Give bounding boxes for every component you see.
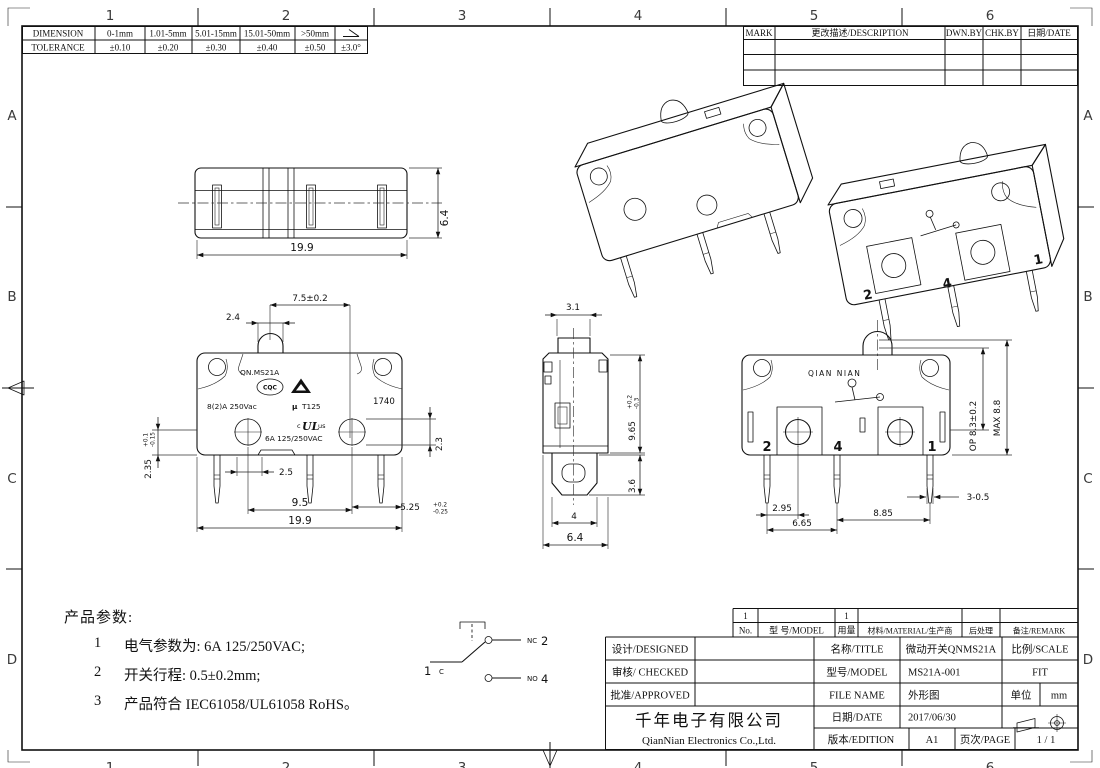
- circuit-com-label: C: [439, 668, 444, 676]
- tolerance-range: 15.01-50mm: [244, 29, 290, 39]
- front-view-pins: [214, 455, 384, 503]
- dim-back-a: 2.95: [772, 504, 792, 514]
- unit-label: 单位: [1011, 689, 1033, 702]
- cqc-logo-icon: CQC: [257, 379, 283, 395]
- dim-side-terminal: 3.6: [628, 479, 638, 493]
- zone-col-label: 2: [282, 760, 291, 768]
- revision-header-chk: CHK.BY: [985, 28, 1019, 38]
- zone-col-label: 3: [458, 760, 467, 768]
- tolerance-table-row1-label: DIMENSION: [33, 29, 84, 39]
- file-name-label: FILE NAME: [829, 691, 885, 702]
- date-label: 日期/DATE: [832, 712, 883, 724]
- note-text: 电气参数为: 6A 125/250VAC;: [124, 635, 424, 656]
- unit-value: mm: [1051, 691, 1067, 702]
- svg-text:5.25: 5.25: [400, 503, 420, 513]
- revision-header-description: 更改描述/DESCRIPTION: [811, 27, 909, 38]
- svg-text:+0.2: +0.2: [628, 395, 634, 409]
- circuit-nc-label: NC: [527, 637, 537, 645]
- circuit-com-terminal: 1: [424, 664, 431, 678]
- revision-header-dwn: DWN.BY: [946, 28, 983, 38]
- tolerance-table: DIMENSION 0-1mm 1.01-5mm 5.01-15mm 15.01…: [22, 26, 368, 54]
- circuit-no-label: NO: [527, 675, 538, 683]
- dim-pin-count: 3-0.5: [967, 493, 990, 503]
- marking-rating-lo: 6A 125/250VAC: [265, 434, 322, 443]
- checked-label: 审核/ CHECKED: [612, 666, 689, 679]
- angle-symbol-icon: [343, 30, 359, 37]
- svg-text:-0.3: -0.3: [635, 397, 641, 409]
- title-label: 名称/TITLE: [830, 643, 883, 656]
- tolerance-value: ±0.40: [257, 43, 278, 53]
- ul-logo-icon: c UL us: [297, 420, 326, 433]
- note-number: 1: [64, 635, 124, 656]
- tolerance-value: ±0.50: [305, 43, 326, 53]
- isometric-view-front: [545, 95, 795, 300]
- front-view-body: [197, 334, 402, 504]
- scale-value: FIT: [1032, 668, 1048, 679]
- svg-text:-0.25: -0.25: [433, 510, 448, 516]
- zone-col-label: 5: [810, 8, 819, 24]
- terminal-4-label: 4: [833, 440, 842, 455]
- top-view-body: [178, 168, 442, 238]
- edition-value: A1: [926, 735, 939, 746]
- title-block: 1 1 No. 型 号/MODEL 用量 材料/MATERIAL/生产商 后处理…: [605, 608, 1080, 751]
- parts-qty-value: 1: [844, 611, 849, 621]
- zone-col-label: 1: [106, 760, 115, 768]
- marking-rating-hi: 8(2)A 250Vac: [207, 402, 257, 411]
- side-view-body: [543, 328, 608, 505]
- dim-edge: 5.25 +0.2 -0.25: [400, 503, 448, 516]
- marking-brand: QIAN NIAN: [808, 369, 861, 378]
- parts-header-model: 型 号/MODEL: [769, 626, 824, 636]
- dim-top-depth: 6.4: [439, 209, 451, 226]
- tolerance-table-row2-label: TOLERANCE: [31, 43, 85, 53]
- svg-text:UL: UL: [302, 420, 320, 433]
- parts-header-no: No.: [739, 626, 752, 636]
- zone-col-label: 6: [986, 760, 995, 768]
- dim-actuator-width: 2.4: [226, 313, 240, 323]
- dim-back-b: 6.65: [792, 519, 812, 529]
- tolerance-range: >50mm: [301, 29, 329, 39]
- company-name-en: QianNian Electronics Co.,Ltd.: [642, 735, 776, 747]
- zone-row-label: A: [7, 108, 17, 124]
- iso1-pins: [620, 212, 781, 298]
- tolerance-value: ±0.10: [110, 43, 131, 53]
- title-value: 微动开关QNMS21A: [906, 643, 997, 656]
- dim-top-width: 19.9: [290, 242, 313, 254]
- svg-text:+0.2: +0.2: [433, 503, 447, 509]
- note-text: 产品符合 IEC61058/UL61058 RoHS。: [124, 693, 424, 714]
- dim-pin-offset: 2.5: [279, 468, 293, 478]
- dim-pin-pitch: 9.5: [292, 497, 309, 509]
- back-view: QIAN NIAN 2 4 1 OP 8.3±0.2: [725, 290, 1055, 550]
- tolerance-range: 1.01-5mm: [149, 29, 186, 39]
- tolerance-range: 0-1mm: [107, 29, 133, 39]
- edition-label: 版本/EDITION: [828, 733, 895, 746]
- iso2-terminal-1: 1: [1033, 252, 1045, 268]
- tolerance-range: 5.01-15mm: [195, 29, 237, 39]
- zone-col-label: 1: [106, 8, 115, 24]
- marking-thermal: T125: [301, 402, 321, 411]
- svg-text:c: c: [297, 422, 301, 430]
- zone-row-label: A: [1083, 108, 1093, 124]
- approved-label: 批准/APPROVED: [610, 689, 690, 702]
- terminal-2-label: 2: [762, 440, 771, 455]
- marking-model: QN.MS21A: [240, 368, 279, 377]
- front-view: QN.MS21A CQC 8(2)A 250Vac μ T125 1740 c …: [140, 290, 485, 550]
- dim-max: MAX 8.8: [993, 400, 1003, 436]
- zone-col-label: 4: [634, 8, 643, 24]
- scale-label: 比例/SCALE: [1011, 643, 1068, 656]
- parts-header-material: 材料/MATERIAL/生产商: [868, 626, 953, 636]
- svg-text:+0.1: +0.1: [144, 433, 150, 447]
- marking-mu: μ: [292, 402, 298, 411]
- dim-hole: 2.3: [435, 437, 445, 451]
- note-number: 2: [64, 664, 124, 685]
- note-text: 开关行程: 0.5±0.2mm;: [124, 664, 424, 685]
- dim-side-actuator: 3.1: [566, 303, 580, 313]
- revision-table: MARK 更改描述/DESCRIPTION DWN.BY CHK.BY 日期/D…: [743, 26, 1078, 86]
- top-view: 19.9 6.4: [150, 140, 480, 270]
- dim-back-c: 8.85: [873, 509, 893, 519]
- zone-col-label: 6: [986, 8, 995, 24]
- zone-col-label: 5: [810, 760, 819, 768]
- tolerance-value: ±0.20: [158, 43, 179, 53]
- front-view-dimensions: 7.5±0.2 2.4 2.3 2.35 +0.1 -0.15: [144, 294, 449, 532]
- dim-side-terminal-w: 4: [571, 512, 577, 522]
- zone-row-label: D: [1083, 652, 1093, 668]
- projection-symbol-target-icon: [1048, 714, 1066, 732]
- circuit-nc-terminal: 2: [541, 634, 548, 648]
- projection-symbol-cone-icon: [1013, 719, 1039, 733]
- revision-header-date: 日期/DATE: [1027, 28, 1071, 38]
- drawing-sheet: 1 2 3 4 5 6 1 2 3 4 5 6 A B C D A B C D: [0, 0, 1100, 768]
- side-view: 3.1 9.65 +0.2 -0.3 3.6 4 6.4: [505, 290, 675, 560]
- top-view-dimensions: 19.9 6.4: [197, 168, 451, 259]
- circuit-no-terminal: 4: [541, 672, 548, 686]
- zone-row-label: C: [1083, 471, 1092, 487]
- tolerance-value: ±0.30: [206, 43, 227, 53]
- zone-row-label: B: [7, 289, 16, 305]
- tolerance-value: ±3.0°: [341, 43, 361, 53]
- file-name-value: 外形图: [908, 690, 940, 702]
- note-item: 1 电气参数为: 6A 125/250VAC;: [64, 635, 424, 656]
- parts-no-value: 1: [743, 611, 748, 621]
- zone-row-label: C: [7, 471, 16, 487]
- zone-col-label: 2: [282, 8, 291, 24]
- parts-header-post: 后处理: [969, 626, 993, 636]
- company-name-cn: 千年电子有限公司: [635, 711, 783, 730]
- svg-text:2.35: 2.35: [144, 459, 154, 479]
- zone-col-label: 3: [458, 8, 467, 24]
- parts-header-qty: 用量: [837, 626, 855, 636]
- dim-actuator-offset: 7.5±0.2: [292, 294, 327, 304]
- triangle-cert-icon: [291, 379, 311, 394]
- note-item: 2 开关行程: 0.5±0.2mm;: [64, 664, 424, 685]
- top-view-slots: [213, 185, 387, 228]
- svg-text:-0.15: -0.15: [151, 432, 157, 447]
- notes-title: 产品参数:: [64, 606, 424, 627]
- back-view-lever: [835, 379, 884, 432]
- terminal-1-label: 1: [927, 440, 936, 455]
- svg-text:9.65: 9.65: [628, 421, 638, 441]
- back-view-dimensions: OP 8.3±0.2 MAX 8.8 2.95 6.65 8.85 3-0.5: [756, 340, 1012, 534]
- note-item: 3 产品符合 IEC61058/UL61058 RoHS。: [64, 693, 424, 714]
- back-view-pins: [764, 455, 933, 503]
- designed-label: 设计/DESIGNED: [612, 643, 689, 656]
- zone-row-label: D: [7, 652, 17, 668]
- zone-row-label: B: [1083, 289, 1092, 305]
- date-value: 2017/06/30: [908, 713, 956, 724]
- model-value: MS21A-001: [908, 668, 961, 679]
- circuit-symbol: 1 C NC 2 NO 4: [415, 608, 605, 703]
- page-value: 1 / 1: [1037, 735, 1056, 746]
- zone-col-label: 4: [634, 760, 643, 768]
- dim-op: OP 8.3±0.2: [969, 401, 979, 451]
- note-number: 3: [64, 693, 124, 714]
- svg-text:us: us: [318, 422, 326, 430]
- parts-header-remark: 备注/REMARK: [1013, 626, 1066, 636]
- dim-side-depth: 6.4: [567, 532, 584, 544]
- dim-side-height: 9.65 +0.2 -0.3: [628, 395, 641, 441]
- revision-header-mark: MARK: [745, 28, 773, 38]
- iso1-body: [564, 67, 830, 303]
- product-notes: 产品参数: 1 电气参数为: 6A 125/250VAC; 2 开关行程: 0.…: [64, 606, 424, 714]
- dim-overall-width: 19.9: [288, 515, 311, 527]
- svg-text:CQC: CQC: [263, 385, 278, 392]
- page-label: 页次/PAGE: [960, 733, 1010, 746]
- model-label: 型号/MODEL: [826, 666, 887, 679]
- back-view-body: QIAN NIAN 2 4 1: [742, 320, 950, 503]
- marking-date-code: 1740: [373, 397, 395, 407]
